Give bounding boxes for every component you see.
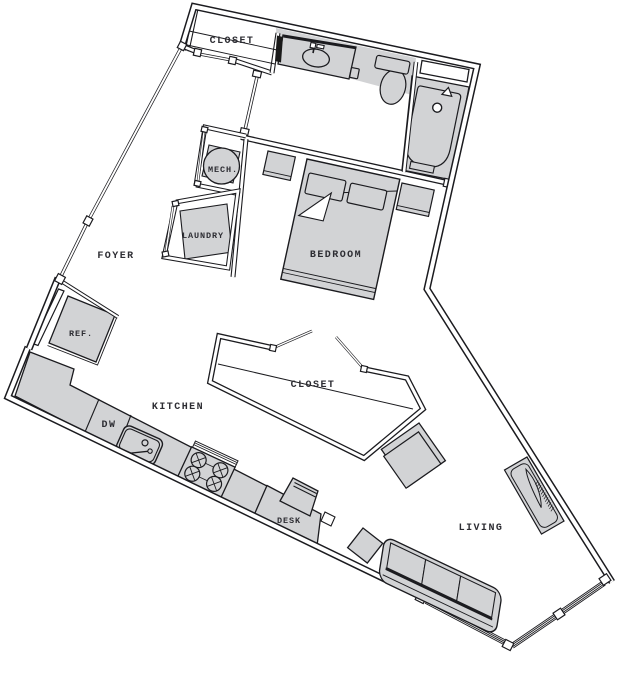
svg-text:DW: DW [102,420,117,431]
svg-text:KITCHEN: KITCHEN [152,402,204,413]
svg-text:MECH.: MECH. [208,165,238,175]
svg-text:FOYER: FOYER [97,251,134,262]
svg-text:DESK: DESK [277,516,301,526]
svg-text:REF.: REF. [69,329,93,339]
svg-text:LAUNDRY: LAUNDRY [182,231,224,241]
svg-text:LIVING: LIVING [459,523,504,534]
svg-text:BEDROOM: BEDROOM [310,250,362,261]
svg-text:CLOSET: CLOSET [291,380,336,391]
svg-text:CLOSET: CLOSET [210,36,255,47]
